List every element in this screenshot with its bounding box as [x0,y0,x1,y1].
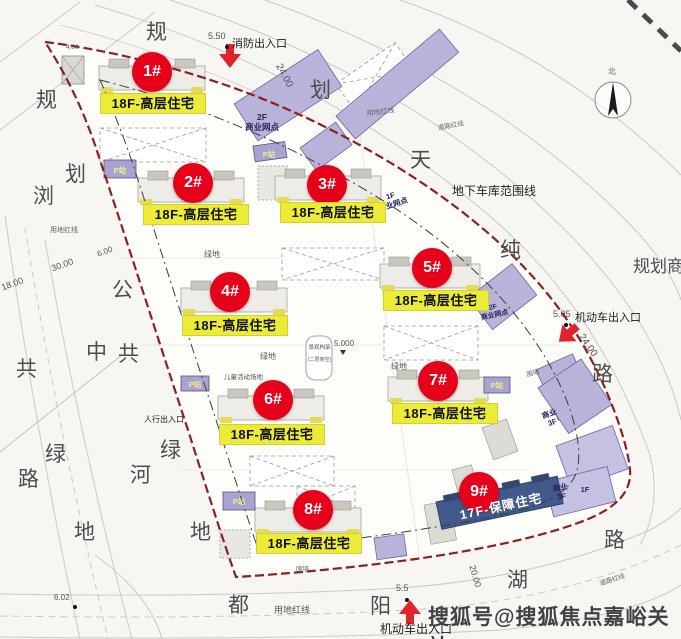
road-char: 路 [18,463,39,493]
site-redline-label: 用地红线 [50,225,78,235]
dim-label: 4.00 [66,44,79,51]
badge-building-6: 6# [253,380,293,420]
badge-building-1: 1# [132,52,172,92]
garage-line-label: 地下车库范围线 [452,182,536,199]
road-char: 湖 [507,564,528,594]
parking-station-label: P站 [481,380,513,391]
planned-commercial-label: 规划商 [633,252,681,277]
road-char: 共 [16,353,37,383]
road-char: 划 [310,74,331,104]
fire-exit-label: 消防出入口 [232,35,287,51]
road-char: 都 [228,589,249,619]
green-space-label: 绿地 [391,361,407,372]
building-4-label: 18F-高层住宅 [182,315,288,336]
green-space-label: 绿地 [260,351,276,362]
parking-station-label: P站 [104,165,136,176]
badge-building-4: 4# [210,272,250,312]
building-7-label: 18F-高层住宅 [392,403,498,424]
site-plan-canvas: 规 划 天 纯 路 规划商 路 湖 阳 都 规 划 浏 公 中 共 共 绿 路 … [0,0,681,639]
road-char: 路 [592,358,613,388]
watermark: 搜狐号@搜狐焦点嘉峪关站 [428,601,681,639]
pergola-label: (二层架空) [305,358,334,364]
compass-north-label: 北 [608,66,616,77]
road-char: 路 [604,524,625,554]
parking-station-label: P站 [253,149,285,160]
road-char: 划 [65,158,86,188]
fence-label: 围墙 [296,563,309,573]
parking-station-label: P站 [223,496,255,507]
road-char: 浏 [33,180,54,210]
badge-building-8: 8# [293,490,333,530]
north-compass [595,82,631,118]
elevation-value: 5.5 [396,583,409,593]
building-2-label: 18F-高层住宅 [143,204,249,225]
vehicle-entrance-label: 机动车出入口 [575,309,641,325]
parking-station-label: P站 [179,379,211,390]
pergola-label: 景观构架 [307,345,332,351]
site-level-label: 5.000 [334,339,354,348]
road-char: 纯 [500,234,521,264]
road-char: 河 [130,459,151,489]
commercial-2f-label: 2F 商业网点 [238,113,286,133]
road-char: 绿 [45,438,66,468]
site-redline-label: 用地红线 [274,603,310,616]
road-char: 地 [74,516,95,546]
road-char: 阳 [370,590,391,620]
road-char: 规 [146,16,167,46]
pedestrian-entrance-label: 人行出入口 [144,414,184,425]
building-5-label: 18F-高层住宅 [383,290,489,311]
dim-label: 6.02 [54,593,70,602]
road-char: 地 [190,516,211,546]
badge-building-7: 7# [418,361,458,401]
commercial-1f-tag: 1F [576,486,594,495]
children-area-label: 儿童活动场地 [224,374,272,381]
building-8-label: 18F-高层住宅 [256,533,362,554]
green-space-label: 绿地 [204,249,220,260]
building-3-label: 18F-高层住宅 [280,202,386,223]
badge-building-5: 5# [412,248,452,288]
road-char: 公 [112,274,133,304]
commercial-name: 商业网点 [238,123,286,133]
badge-building-3: 3# [307,165,347,205]
badge-building-2: 2# [173,163,213,203]
road-char: 规 [36,84,57,114]
road-char: 中 [86,336,107,366]
elevation-value: 5.05 [553,309,571,319]
building-1-label: 18F-高层住宅 [100,93,206,114]
road-char: 共 [118,338,139,368]
road-char: 绿 [160,434,181,464]
road-char: 天 [410,144,431,174]
building-6-label: 18F-高层住宅 [219,424,325,445]
elevation-value: 5.50 [208,31,226,41]
